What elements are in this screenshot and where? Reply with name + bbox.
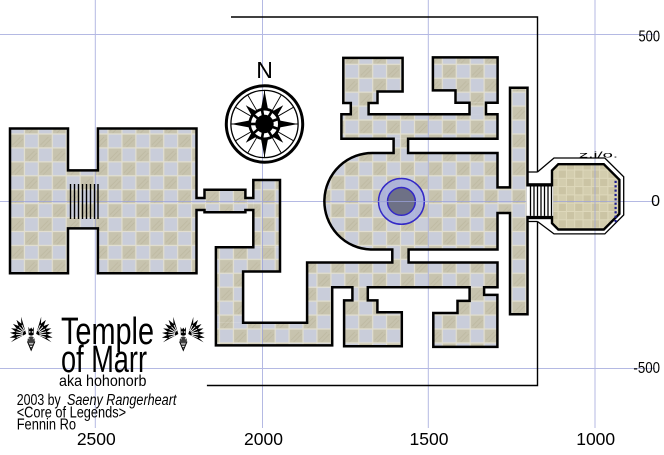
svg-text:0: 0 [651, 193, 660, 210]
svg-text:1000: 1000 [576, 429, 615, 449]
svg-text:N: N [256, 57, 273, 83]
svg-text:2000: 2000 [244, 429, 283, 449]
svg-text:aka hohonorb: aka hohonorb [59, 373, 146, 390]
svg-text:Fennin Ro: Fennin Ro [17, 417, 76, 434]
svg-text:1500: 1500 [410, 429, 449, 449]
svg-text:2500: 2500 [77, 429, 116, 449]
svg-text:-500: -500 [633, 360, 660, 377]
svg-text:z.i/o.: z.i/o. [579, 151, 618, 160]
svg-text:500: 500 [639, 29, 661, 46]
